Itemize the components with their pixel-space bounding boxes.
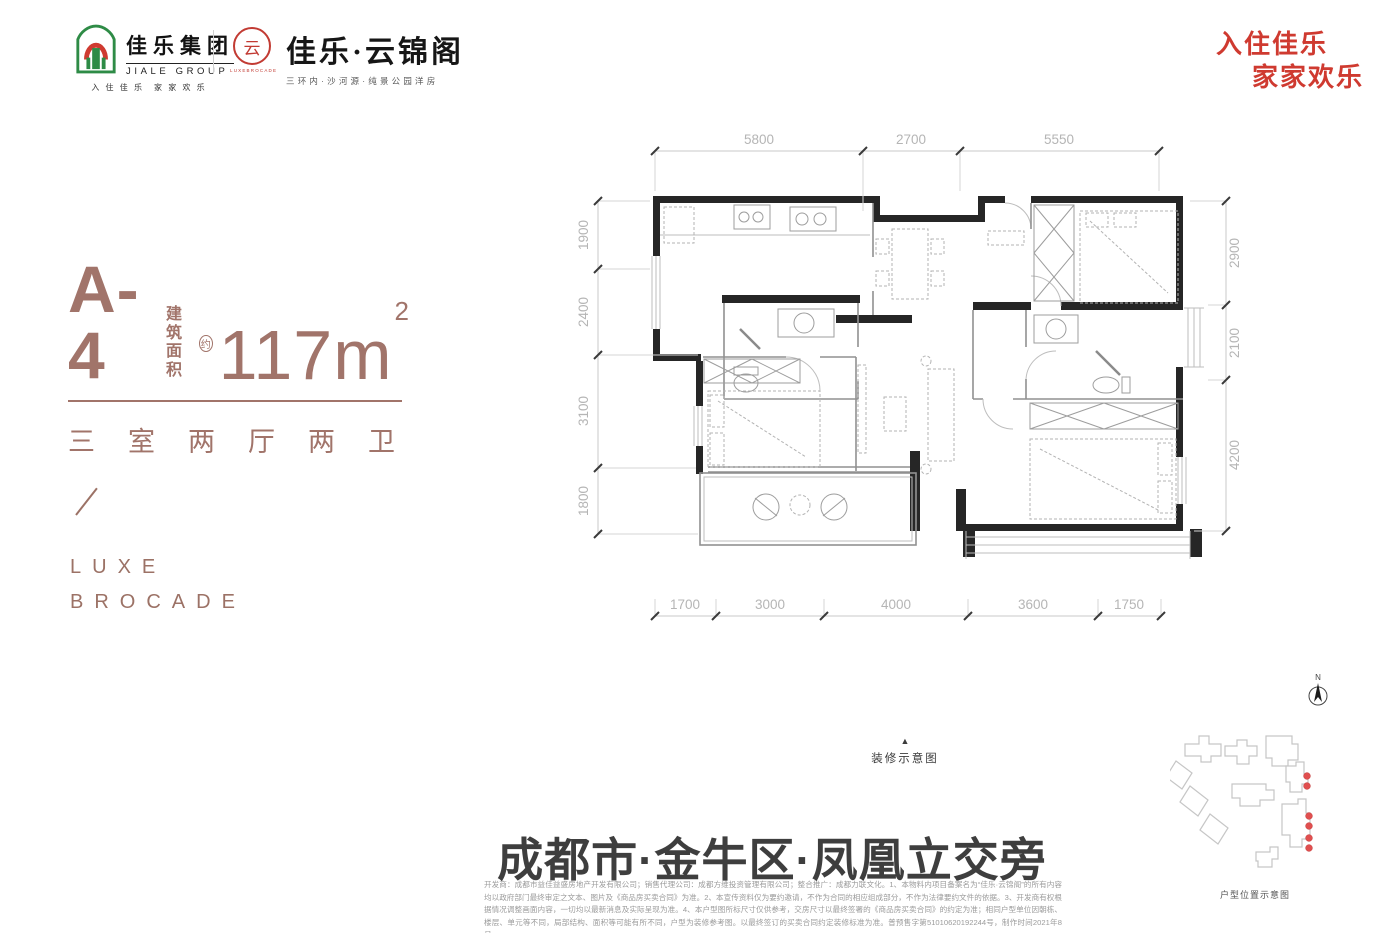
dim-label: 1700 <box>670 597 700 612</box>
area-number: 117m <box>219 316 393 394</box>
approx-badge: 约 <box>199 335 213 352</box>
group-logo: 佳乐集团 JIALE GROUP 入 住 佳 乐 家 家 欢 乐 <box>74 24 224 93</box>
area-value: 117m2 <box>219 322 408 389</box>
group-name-en: JIALE GROUP <box>126 63 234 77</box>
group-tagline: 入 住 佳 乐 家 家 欢 乐 <box>74 82 224 93</box>
dim-label: 2900 <box>1227 238 1242 268</box>
seal-circle: 云 <box>233 27 271 65</box>
seal-caption: LUXEBROCADE <box>230 68 274 73</box>
dim-label: 2700 <box>896 132 926 147</box>
slogan-line-1: 入住佳乐 <box>1216 28 1364 61</box>
luxe-line-1: LUXE <box>70 550 246 585</box>
brand-tagline: 三环内·沙河源·纯景公园洋房 <box>286 75 464 87</box>
buildings-layer <box>1170 736 1310 867</box>
structure-layer <box>652 203 1204 559</box>
plan-caption: ▲ 装修示意图 <box>840 737 970 766</box>
slogan: 入住佳乐 家家欢乐 <box>1216 28 1364 93</box>
area-label-line1: 建筑 <box>166 306 196 343</box>
slogan-line-2: 家家欢乐 <box>1216 61 1364 94</box>
luxe-brocade-block: LUXE BROCADE <box>70 500 246 620</box>
area-superscript: 2 <box>395 296 410 326</box>
svg-text:N: N <box>1315 673 1321 682</box>
plan-caption-text: 装修示意图 <box>840 750 970 766</box>
header-divider <box>213 30 214 74</box>
compass-icon: N <box>1309 673 1327 705</box>
group-name-cn: 佳乐集团 <box>126 30 234 60</box>
dim-label: 1750 <box>1114 597 1144 612</box>
up-arrow-icon: ▲ <box>840 737 970 746</box>
dim-label: 4200 <box>1227 440 1242 470</box>
brand-name: 佳乐·云锦阁 <box>286 27 464 71</box>
dimensions-layer: 5800 2700 5550 1900 2400 3100 1800 2900 … <box>576 132 1242 620</box>
dim-label: 1900 <box>576 220 591 250</box>
jiale-group-logo-icon <box>74 24 118 74</box>
unit-rooms: 三室两厅两卫 <box>68 420 408 459</box>
site-map-caption: 户型位置示意图 <box>1180 888 1330 901</box>
dim-label: 2100 <box>1227 328 1242 358</box>
unit-code: A-4 <box>68 256 156 388</box>
dim-label: 1800 <box>576 486 591 516</box>
unit-info-panel: A-4 建筑 面积 约 117m2 三室两厅两卫 <box>68 256 408 459</box>
dim-label: 5550 <box>1044 132 1074 147</box>
site-map: N <box>1170 666 1335 886</box>
disclaimer-text: 开发商：成都市益佳益盛房地产开发有限公司；销售代理公司：成都方维投资管理有限公司… <box>484 879 1062 933</box>
unit-divider-line <box>68 400 402 402</box>
floor-plan: 5800 2700 5550 1900 2400 3100 1800 2900 … <box>548 124 1248 674</box>
dim-label: 3600 <box>1018 597 1048 612</box>
brand-lockup: 云 LUXEBROCADE 佳乐·云锦阁 三环内·沙河源·纯景公园洋房 <box>230 27 464 87</box>
luxe-line-2: BROCADE <box>70 585 246 620</box>
slash-icon <box>75 488 98 516</box>
area-label-line2: 面积 <box>166 343 196 380</box>
dim-label: 4000 <box>881 597 911 612</box>
dim-label: 5800 <box>744 132 774 147</box>
brand-seal-icon: 云 LUXEBROCADE <box>230 27 274 73</box>
dim-label: 2400 <box>576 297 591 327</box>
area-label: 建筑 面积 约 <box>166 306 213 380</box>
dim-label: 3000 <box>755 597 785 612</box>
dim-label: 3100 <box>576 396 591 426</box>
